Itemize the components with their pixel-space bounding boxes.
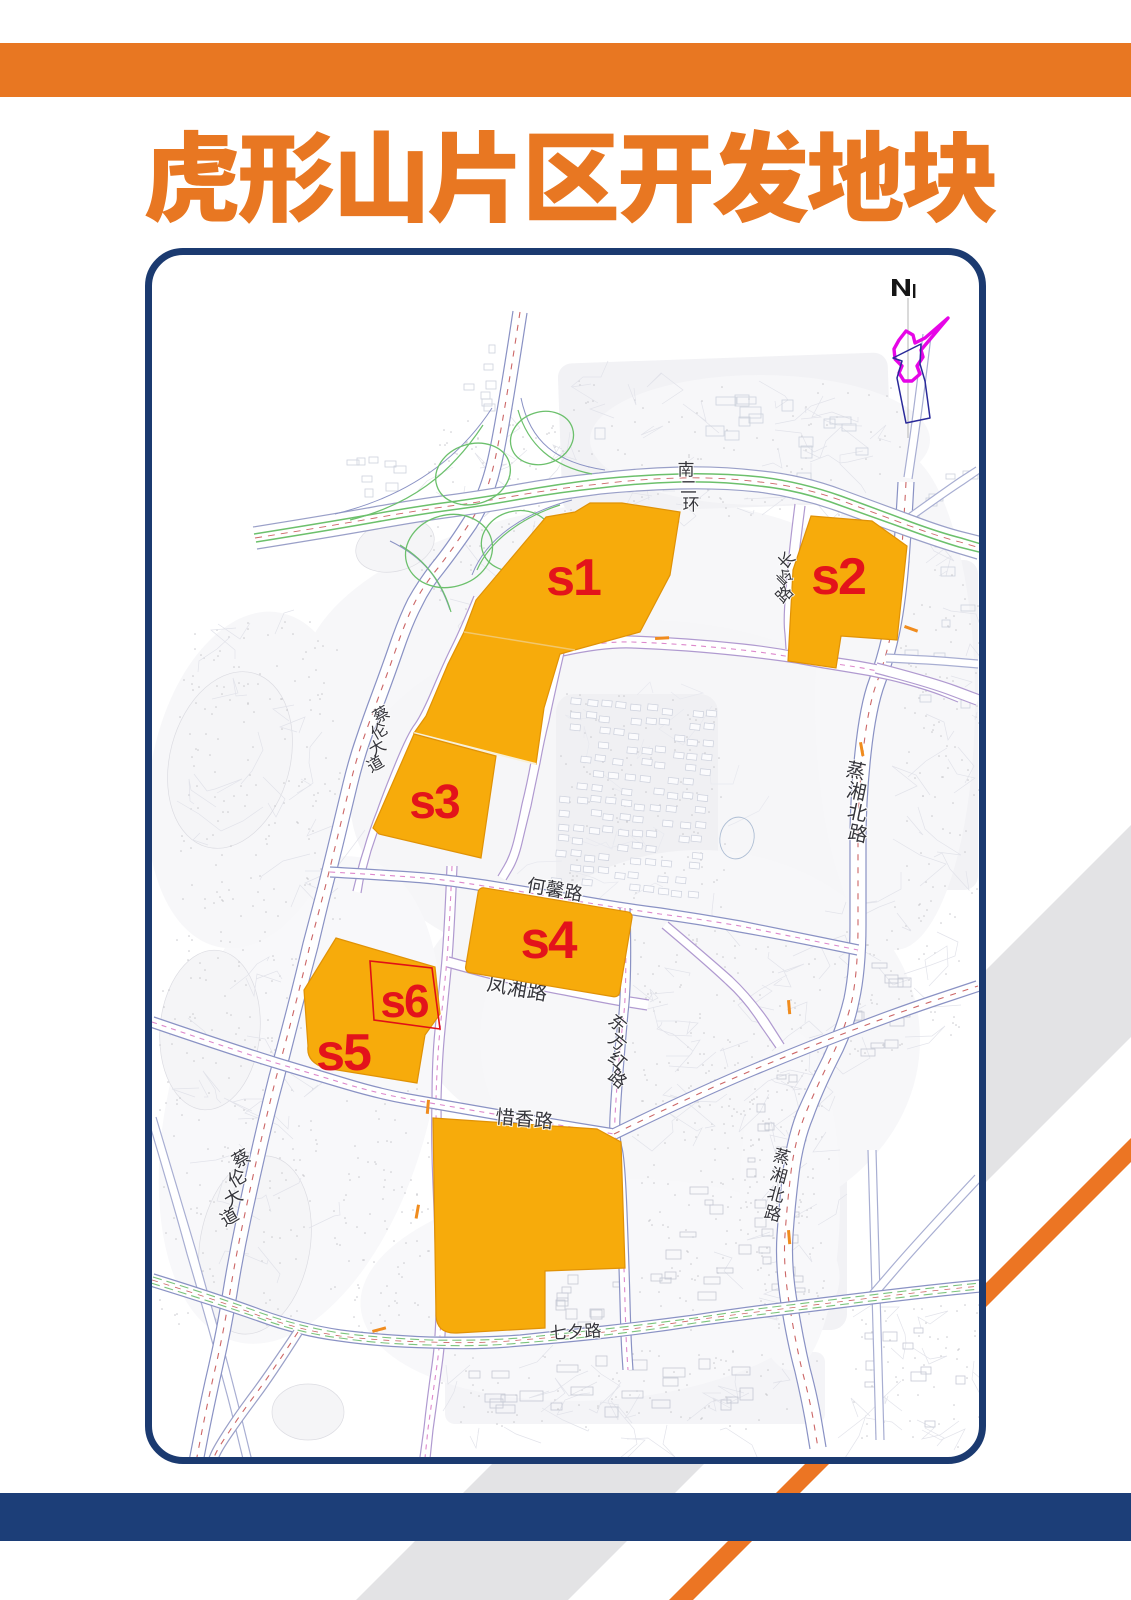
svg-text:s4: s4	[521, 911, 578, 970]
svg-text:s2: s2	[811, 548, 865, 606]
svg-text:s5: s5	[316, 1024, 371, 1082]
svg-text:s1: s1	[546, 549, 601, 607]
svg-text:s6: s6	[380, 975, 428, 1027]
svg-text:s3: s3	[409, 776, 459, 829]
